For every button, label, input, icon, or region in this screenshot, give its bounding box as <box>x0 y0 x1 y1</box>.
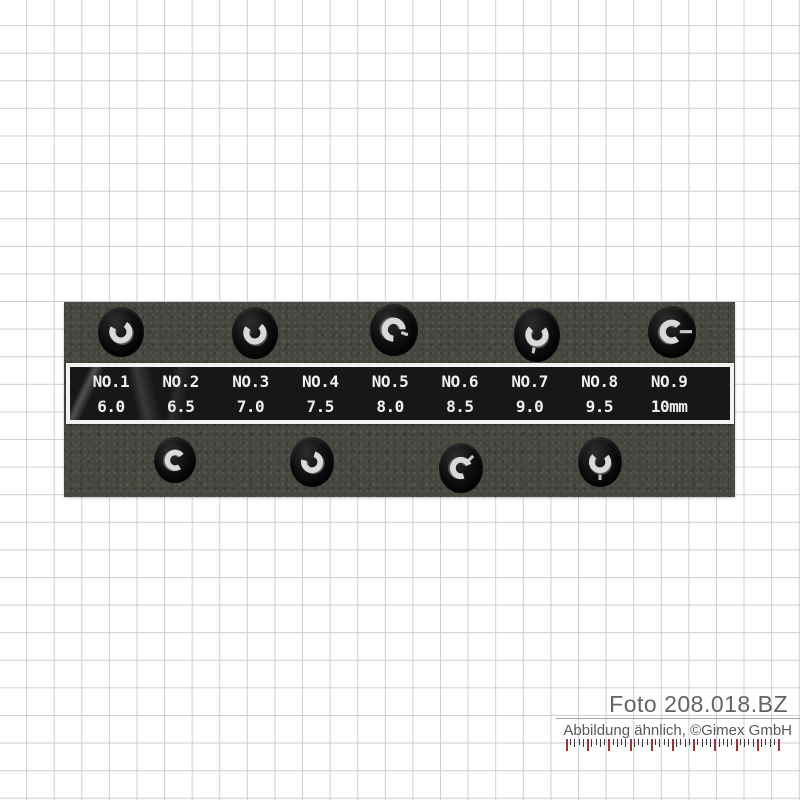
wrench-open-end-jaw <box>111 324 131 342</box>
ruler-minor-tick <box>702 739 703 747</box>
foam-hole <box>578 437 622 487</box>
open-end-wrench-icon <box>652 312 691 351</box>
wrench-number: NO.9 <box>634 369 704 395</box>
open-end-wrench-icon <box>102 313 140 351</box>
ruler-minor-tick <box>668 739 669 747</box>
label-column: NO.16.0 <box>76 369 146 420</box>
ruler-minor-tick <box>689 739 690 745</box>
ruler-major-tick <box>778 739 780 751</box>
ruler-minor-tick <box>680 739 681 745</box>
wrench-size: 6.0 <box>76 395 146 419</box>
foam-hole <box>290 437 334 487</box>
open-end-wrench-icon <box>236 314 274 352</box>
ruler-minor-tick <box>583 739 584 747</box>
label-column: NO.89.5 <box>564 369 634 420</box>
ruler-minor-tick <box>719 739 720 747</box>
ruler-minor-tick <box>676 739 677 747</box>
label-column: NO.37.0 <box>216 369 286 420</box>
ruler-minor-tick <box>621 739 622 745</box>
label-column: NO.910mm <box>634 369 704 420</box>
ruler-minor-tick <box>706 739 707 745</box>
wrench-size: 10mm <box>634 395 704 419</box>
ruler-minor-tick <box>744 739 745 747</box>
scale-ruler-icon <box>566 739 782 752</box>
ruler-minor-tick <box>765 739 766 745</box>
wrench-size: 9.5 <box>564 395 634 419</box>
wrench-number: NO.6 <box>425 369 495 395</box>
ruler-minor-tick <box>634 739 635 747</box>
open-end-wrench-icon <box>443 450 479 486</box>
copyright-disclaimer-text: Abbildung ähnlich, ©Gimex GmbH <box>563 722 792 739</box>
ruler-minor-tick <box>579 739 580 745</box>
foam-hole <box>648 306 696 358</box>
ruler-major-tick <box>693 739 695 751</box>
open-end-wrench-icon <box>582 444 618 480</box>
ruler-major-tick <box>672 739 674 751</box>
foam-hole <box>439 443 483 493</box>
size-label-inner: NO.16.0NO.26.5NO.37.0NO.47.5NO.58.0NO.68… <box>70 367 730 420</box>
ruler-major-tick <box>736 739 738 751</box>
ruler-minor-tick <box>613 739 614 745</box>
ruler-minor-tick <box>574 739 575 747</box>
ruler-minor-tick <box>664 739 665 745</box>
ruler-minor-tick <box>774 739 775 745</box>
ruler-minor-tick <box>591 739 592 747</box>
ruler-major-tick <box>757 739 759 751</box>
foam-hole <box>98 307 144 357</box>
wrench-number: NO.7 <box>495 369 565 395</box>
wrench-open-end-jaw <box>592 456 609 470</box>
ruler-minor-tick <box>685 739 686 747</box>
separator-line <box>556 718 800 719</box>
wrench-number: NO.1 <box>76 369 146 395</box>
ruler-minor-tick <box>723 739 724 745</box>
ruler-minor-tick <box>748 739 749 745</box>
wrench-number: NO.2 <box>146 369 216 395</box>
foam-hole <box>514 308 560 362</box>
wrench-size: 8.5 <box>425 395 495 419</box>
ruler-major-tick <box>651 739 653 751</box>
photo-reference-text: Foto 208.018.BZ <box>609 691 788 718</box>
ruler-minor-tick <box>727 739 728 747</box>
ruler-minor-tick <box>570 739 571 745</box>
wrench-number: NO.8 <box>564 369 634 395</box>
open-end-wrench-icon <box>158 443 192 477</box>
foam-hole <box>370 304 418 356</box>
ruler-minor-tick <box>710 739 711 747</box>
foam-hole <box>232 307 278 359</box>
ruler-major-tick <box>566 739 568 751</box>
wrench-size: 7.0 <box>216 395 286 419</box>
wrench-number: NO.3 <box>216 369 286 395</box>
wrench-size: 7.5 <box>285 395 355 419</box>
ruler-minor-tick <box>740 739 741 745</box>
label-column: NO.79.0 <box>495 369 565 420</box>
ruler-minor-tick <box>697 739 698 745</box>
ruler-minor-tick <box>659 739 660 747</box>
open-end-wrench-icon <box>374 310 413 349</box>
wrench-handle <box>401 331 409 336</box>
ruler-major-tick <box>587 739 589 751</box>
ruler-minor-tick <box>638 739 639 745</box>
product-photo-page: { "product_label": { "columns": [ {"no":… <box>0 0 800 800</box>
ruler-minor-tick <box>642 739 643 747</box>
wrench-handle <box>680 330 692 333</box>
wrench-open-end-jaw <box>662 322 679 341</box>
wrench-open-end-jaw <box>166 451 182 469</box>
ruler-minor-tick <box>617 739 618 747</box>
ruler-minor-tick <box>604 739 605 745</box>
ruler-minor-tick <box>655 739 656 745</box>
label-column: NO.58.0 <box>355 369 425 420</box>
ruler-minor-tick <box>596 739 597 745</box>
ruler-major-tick <box>630 739 632 751</box>
open-end-wrench-icon <box>294 444 330 480</box>
ruler-major-tick <box>608 739 610 751</box>
label-column: NO.47.5 <box>285 369 355 420</box>
size-label-strip: NO.16.0NO.26.5NO.37.0NO.47.5NO.58.0NO.68… <box>66 363 734 424</box>
label-column: NO.26.5 <box>146 369 216 420</box>
foam-hole <box>154 437 196 483</box>
wrench-number: NO.5 <box>355 369 425 395</box>
ruler-minor-tick <box>761 739 762 747</box>
ruler-minor-tick <box>600 739 601 747</box>
open-end-wrench-icon <box>518 316 556 354</box>
wrench-number: NO.4 <box>285 369 355 395</box>
label-column: NO.68.5 <box>425 369 495 420</box>
wrench-size: 6.5 <box>146 395 216 419</box>
wrench-size: 9.0 <box>495 395 565 419</box>
wrench-size: 8.0 <box>355 395 425 419</box>
ruler-minor-tick <box>731 739 732 745</box>
foam-tool-holder: NO.16.0NO.26.5NO.37.0NO.47.5NO.58.0NO.68… <box>64 302 735 497</box>
wrench-open-end-jaw <box>246 326 265 343</box>
ruler-minor-tick <box>625 739 626 747</box>
ruler-major-tick <box>714 739 716 751</box>
ruler-minor-tick <box>753 739 754 747</box>
ruler-minor-tick <box>647 739 648 745</box>
ruler-minor-tick <box>770 739 771 747</box>
wrench-open-end-jaw <box>528 329 546 344</box>
